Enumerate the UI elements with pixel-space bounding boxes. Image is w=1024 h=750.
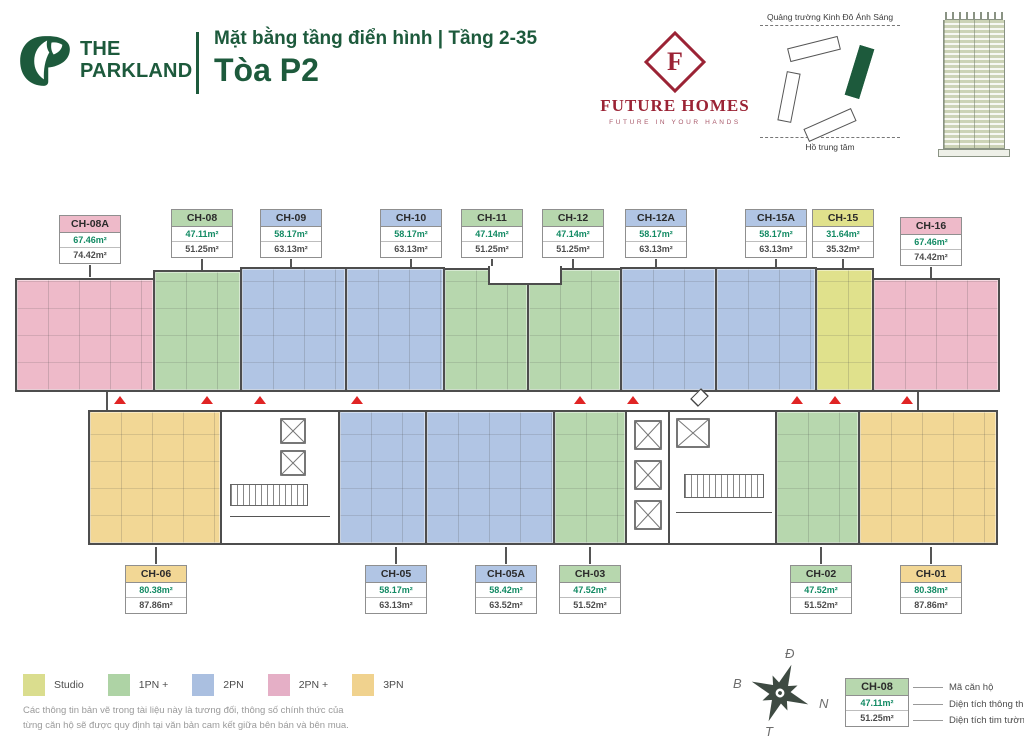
legend-label: Studio xyxy=(54,679,84,691)
unit-area-gross: 87.86m² xyxy=(126,598,186,613)
unit-type-legend: Studio 1PN + 2PN 2PN + 3PN xyxy=(23,674,428,696)
unit-area-gross: 51.25m² xyxy=(543,242,603,257)
elevator-icon xyxy=(280,450,306,476)
1pn-swatch xyxy=(108,674,130,696)
compass-star-icon xyxy=(747,660,813,726)
unit-area-net: 80.38m² xyxy=(126,583,186,598)
entrance-arrow xyxy=(901,396,913,404)
parkland-leaf-logo xyxy=(18,34,72,88)
tower-elevation-illustration xyxy=(938,12,1010,164)
legend-label: 2PN + xyxy=(299,679,328,691)
elevator-icon xyxy=(676,418,710,448)
unit-code: CH-11 xyxy=(462,210,522,227)
unit-CH-15A xyxy=(715,267,817,392)
unit-CH-16 xyxy=(872,278,1000,392)
header-divider xyxy=(196,32,199,94)
label-connector xyxy=(89,265,91,277)
legend-label: 1PN + xyxy=(139,679,168,691)
unit-label-CH-15: CH-15 31.64m² 35.32m² xyxy=(812,209,874,258)
unit-label-CH-10: CH-10 58.17m² 63.13m² xyxy=(380,209,442,258)
unit-CH-08A xyxy=(15,278,155,392)
unit-code: CH-01 xyxy=(901,566,961,583)
logo-letter: F xyxy=(667,47,683,77)
unit-label-CH-06: CH-06 80.38m² 87.86m² xyxy=(125,565,187,614)
unit-code: CH-09 xyxy=(261,210,321,227)
entrance-arrow xyxy=(627,396,639,404)
page-title: Tòa P2 xyxy=(214,52,319,89)
unit-code: CH-06 xyxy=(126,566,186,583)
building-outline xyxy=(777,71,800,123)
key-pointer-line xyxy=(913,720,943,721)
unit-area-gross: 63.13m² xyxy=(381,242,441,257)
key-area-gross: 51.25m² xyxy=(846,711,908,726)
label-connector xyxy=(395,547,397,564)
unit-CH-10 xyxy=(345,267,445,392)
unit-code: CH-05 xyxy=(366,566,426,583)
unit-area-net: 58.42m² xyxy=(476,583,536,598)
unit-CH-11 xyxy=(443,268,529,392)
elevator-bank xyxy=(625,410,670,545)
elevator-icon xyxy=(280,418,306,444)
legend-item-1pn: 1PN + xyxy=(108,674,168,696)
brand-line1: THE xyxy=(80,38,192,60)
label-connector xyxy=(930,547,932,564)
key-label-code: Mã căn hộ xyxy=(949,682,993,693)
site-map-top-label: Quảng trường Kinh Đô Ánh Sáng xyxy=(760,12,900,22)
label-connector xyxy=(589,547,591,564)
unit-label-CH-11: CH-11 47.14m² 51.25m² xyxy=(461,209,523,258)
entrance-arrow xyxy=(791,396,803,404)
unit-area-gross: 51.52m² xyxy=(791,598,851,613)
label-connector xyxy=(505,547,507,564)
building-p2-highlight xyxy=(845,45,875,99)
unit-area-gross: 87.86m² xyxy=(901,598,961,613)
unit-CH-08 xyxy=(153,270,242,392)
logo-name: FUTURE HOMES xyxy=(600,96,750,116)
unit-label-CH-12A: CH-12A 58.17m² 63.13m² xyxy=(625,209,687,258)
elevator-icon xyxy=(634,420,662,450)
label-connector xyxy=(201,259,203,270)
label-connector xyxy=(155,547,157,564)
unit-CH-05A xyxy=(425,410,555,545)
compass-south: N xyxy=(819,696,828,711)
elevator-icon xyxy=(634,460,662,490)
key-pointer-line xyxy=(913,704,943,705)
disclaimer-text: Các thông tin bản vẽ trong tài liệu này … xyxy=(23,704,353,733)
label-connector xyxy=(820,547,822,564)
site-map-buildings xyxy=(760,26,900,134)
brand-line2: PARKLAND xyxy=(80,60,192,82)
brand-name: THE PARKLAND xyxy=(80,38,192,82)
unit-CH-12 xyxy=(527,268,622,392)
unit-label-CH-05A: CH-05A 58.42m² 63.52m² xyxy=(475,565,537,614)
unit-area-gross: 35.32m² xyxy=(813,242,873,257)
logo-tagline: FUTURE IN YOUR HANDS xyxy=(600,119,750,126)
unit-CH-09 xyxy=(240,267,347,392)
unit-area-gross: 63.13m² xyxy=(261,242,321,257)
unit-code: CH-12A xyxy=(626,210,686,227)
core-wall xyxy=(230,516,330,517)
unit-area-net: 47.14m² xyxy=(462,227,522,242)
key-label-area-gross: Diện tích tim tường xyxy=(949,715,1024,726)
facade-notch xyxy=(488,266,562,285)
unit-code: CH-15A xyxy=(746,210,806,227)
key-unit-code: CH-08 xyxy=(846,679,908,696)
compass-north: B xyxy=(733,676,742,691)
unit-area-gross: 63.13m² xyxy=(746,242,806,257)
legend-item-studio: Studio xyxy=(23,674,84,696)
entrance-arrow xyxy=(201,396,213,404)
unit-label-CH-05: CH-05 58.17m² 63.13m² xyxy=(365,565,427,614)
unit-code: CH-12 xyxy=(543,210,603,227)
unit-area-gross: 63.13m² xyxy=(626,242,686,257)
unit-CH-06 xyxy=(88,410,222,545)
entrance-arrow xyxy=(351,396,363,404)
unit-label-CH-12: CH-12 47.14m² 51.25m² xyxy=(542,209,604,258)
unit-area-gross: 63.52m² xyxy=(476,598,536,613)
future-homes-logo: F FUTURE HOMES FUTURE IN YOUR HANDS xyxy=(600,40,750,126)
unit-area-net: 67.46m² xyxy=(60,233,120,248)
unit-CH-01 xyxy=(858,410,998,545)
unit-code: CH-05A xyxy=(476,566,536,583)
unit-code: CH-02 xyxy=(791,566,851,583)
corridor-line xyxy=(917,392,919,410)
tower-crown xyxy=(945,12,1003,20)
key-label-area-net: Diện tích thông thủy xyxy=(949,699,1024,710)
entrance-arrow xyxy=(574,396,586,404)
2pn-swatch xyxy=(192,674,214,696)
stairs xyxy=(230,484,308,506)
legend-label: 2PN xyxy=(223,679,243,691)
unit-area-gross: 63.13m² xyxy=(366,598,426,613)
studio-swatch xyxy=(23,674,45,696)
unit-label-CH-01: CH-01 80.38m² 87.86m² xyxy=(900,565,962,614)
unit-label-CH-15A: CH-15A 58.17m² 63.13m² xyxy=(745,209,807,258)
unit-area-net: 47.52m² xyxy=(791,583,851,598)
core-elevator-stair-block xyxy=(220,410,340,545)
entrance-arrow xyxy=(114,396,126,404)
unit-CH-12A xyxy=(620,267,717,392)
unit-code: CH-16 xyxy=(901,218,961,235)
unit-code: CH-10 xyxy=(381,210,441,227)
legend-item-2pn: 2PN xyxy=(192,674,243,696)
unit-area-net: 80.38m² xyxy=(901,583,961,598)
unit-area-gross: 74.42m² xyxy=(901,250,961,265)
unit-area-net: 47.52m² xyxy=(560,583,620,598)
compass-west: T xyxy=(765,724,773,739)
key-sample-box: CH-08 47.11m² 51.25m² xyxy=(845,678,909,727)
unit-area-net: 58.17m² xyxy=(746,227,806,242)
tower-base xyxy=(938,149,1010,157)
unit-area-net: 31.64m² xyxy=(813,227,873,242)
legend-item-3pn: 3PN xyxy=(352,674,403,696)
entrance-arrow xyxy=(254,396,266,404)
unit-label-CH-08A: CH-08A 67.46m² 74.42m² xyxy=(59,215,121,264)
unit-label-CH-08: CH-08 47.11m² 51.25m² xyxy=(171,209,233,258)
unit-CH-05 xyxy=(338,410,427,545)
3pn-swatch xyxy=(352,674,374,696)
unit-area-net: 47.14m² xyxy=(543,227,603,242)
entrance-arrow xyxy=(829,396,841,404)
unit-code: CH-08 xyxy=(172,210,232,227)
unit-area-net: 58.17m² xyxy=(261,227,321,242)
legend-item-2pn-plus: 2PN + xyxy=(268,674,328,696)
core-wall xyxy=(676,512,772,513)
unit-code: CH-15 xyxy=(813,210,873,227)
unit-label-CH-02: CH-02 47.52m² 51.52m² xyxy=(790,565,852,614)
unit-code: CH-03 xyxy=(560,566,620,583)
compass-rose: Đ B N T xyxy=(733,648,837,744)
stairs xyxy=(684,474,764,498)
unit-area-net: 58.17m² xyxy=(366,583,426,598)
unit-CH-03 xyxy=(553,410,627,545)
unit-CH-02 xyxy=(775,410,860,545)
label-connector xyxy=(930,267,932,278)
unit-CH-15 xyxy=(815,268,874,392)
site-mini-map: Quảng trường Kinh Đô Ánh Sáng Hồ trung t… xyxy=(760,12,900,164)
key-pointer-line xyxy=(913,687,943,688)
building-outline xyxy=(787,36,841,62)
legend-label: 3PN xyxy=(383,679,403,691)
elevator-icon xyxy=(634,500,662,530)
unit-area-net: 47.11m² xyxy=(172,227,232,242)
compass-east: Đ xyxy=(785,646,794,661)
unit-label-CH-03: CH-03 47.52m² 51.52m² xyxy=(559,565,621,614)
floorplan-poster: THE PARKLAND Mặt bằng tầng điển hình | T… xyxy=(0,0,1024,750)
unit-area-gross: 74.42m² xyxy=(60,248,120,263)
site-map-dashed-road-bottom xyxy=(760,137,900,138)
key-area-net: 47.11m² xyxy=(846,696,908,711)
unit-area-gross: 51.52m² xyxy=(560,598,620,613)
unit-area-net: 67.46m² xyxy=(901,235,961,250)
unit-area-net: 58.17m² xyxy=(626,227,686,242)
unit-area-gross: 51.25m² xyxy=(462,242,522,257)
unit-area-gross: 51.25m² xyxy=(172,242,232,257)
core-elevator-stair-block xyxy=(668,410,777,545)
unit-code: CH-08A xyxy=(60,216,120,233)
unit-label-CH-16: CH-16 67.46m² 74.42m² xyxy=(900,217,962,266)
unit-label-CH-09: CH-09 58.17m² 63.13m² xyxy=(260,209,322,258)
unit-area-net: 58.17m² xyxy=(381,227,441,242)
2pn-plus-swatch xyxy=(268,674,290,696)
site-map-bottom-label: Hồ trung tâm xyxy=(760,142,900,152)
diamond-icon: F xyxy=(644,31,706,93)
tower-body xyxy=(943,20,1005,149)
page-subtitle: Mặt bằng tầng điển hình | Tầng 2-35 xyxy=(214,28,537,50)
